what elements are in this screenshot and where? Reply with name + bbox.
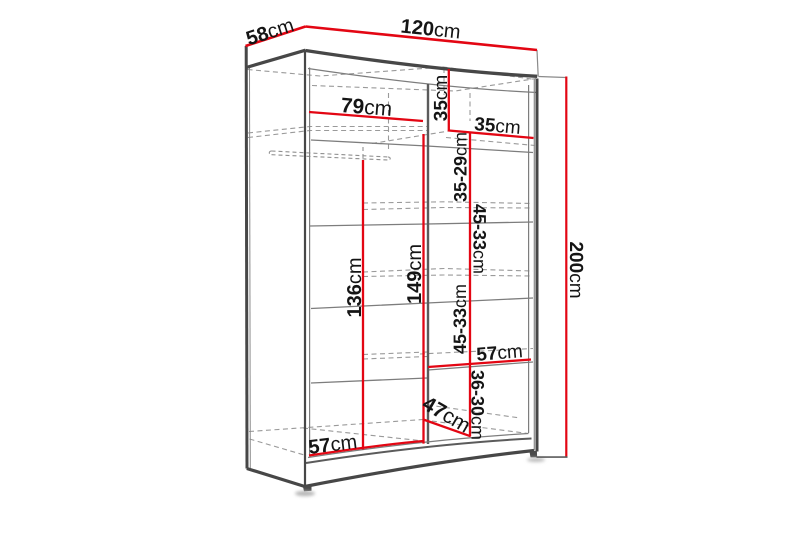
svg-text:200cm: 200cm [565,241,586,298]
svg-text:35-29cm: 35-29cm [451,132,471,202]
svg-text:35cm: 35cm [431,75,452,121]
svg-text:79cm: 79cm [340,94,393,121]
svg-text:36-30cm: 36-30cm [468,370,488,440]
svg-text:149cm: 149cm [404,244,426,304]
svg-text:136cm: 136cm [344,257,366,317]
svg-text:57cm: 57cm [476,341,524,366]
svg-text:45-33cm: 45-33cm [470,204,490,274]
svg-text:45-33cm: 45-33cm [450,284,470,354]
svg-text:35cm: 35cm [473,114,521,139]
